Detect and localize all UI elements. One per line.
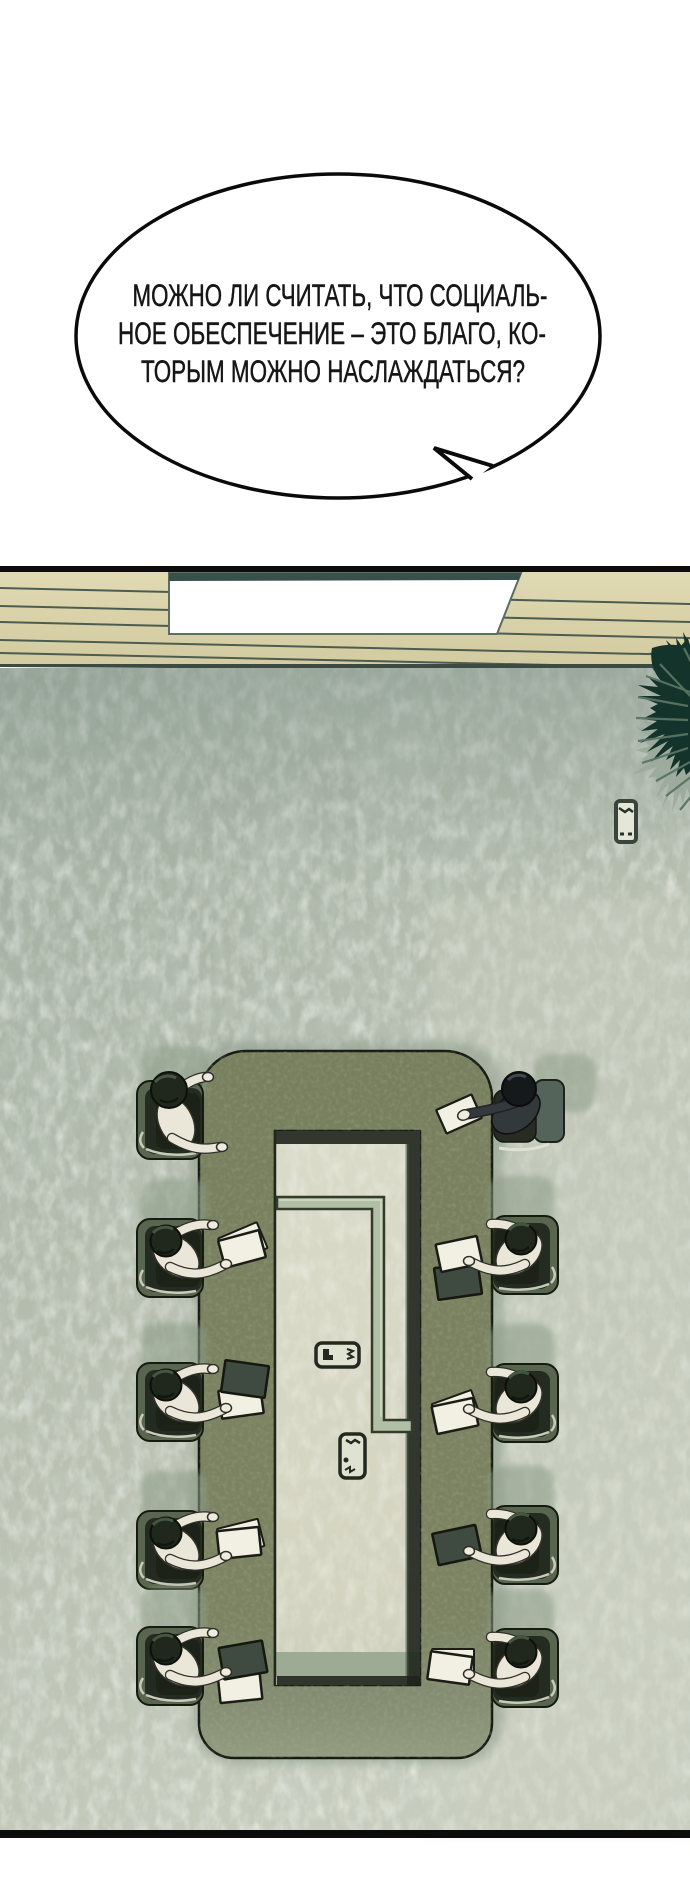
svg-text:НОЕ ОБЕСПЕЧЕНИЕ – ЭТО БЛАГО, К: НОЕ ОБЕСПЕЧЕНИЕ – ЭТО БЛАГО, КО- [118, 315, 546, 351]
svg-text:ТОРЫМ МОЖНО НАСЛАЖДАТЬСЯ?: ТОРЫМ МОЖНО НАСЛАЖДАТЬСЯ? [141, 353, 525, 389]
svg-text:МОЖНО ЛИ СЧИТАТЬ, ЧТО СОЦИАЛЬ-: МОЖНО ЛИ СЧИТАТЬ, ЧТО СОЦИАЛЬ- [133, 277, 548, 313]
